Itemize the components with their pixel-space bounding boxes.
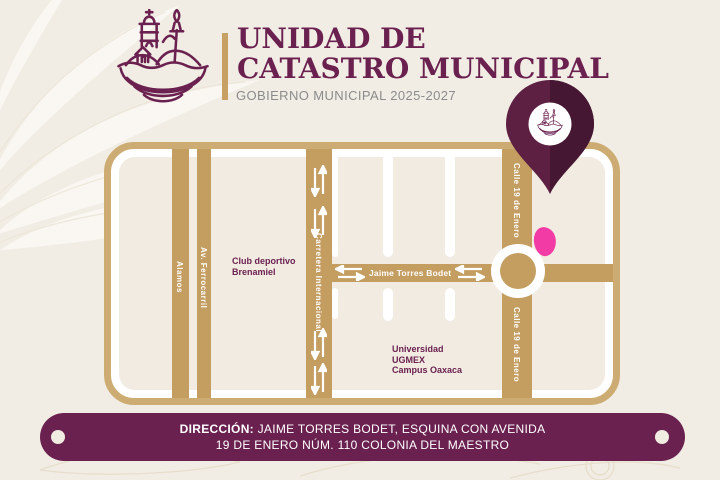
two-way-arrow-icon	[311, 165, 327, 197]
title-line1: UNIDAD DE	[237, 24, 657, 54]
address-line1-rest: JAIME TORRES BODET, ESQUINA CON AVENIDA	[254, 422, 545, 436]
minor-street	[383, 288, 393, 321]
municipal-emblem-logo	[110, 8, 216, 116]
roundabout	[500, 253, 536, 289]
address-line2: 19 DE ENERO NÚM. 110 COLONIA DEL MAESTRO	[40, 437, 685, 453]
place-universidad-ugmex: Universidad UGMEX Campus Oaxaca	[392, 344, 462, 376]
address-label: DIRECCIÓN:	[180, 422, 254, 436]
minor-street	[332, 149, 338, 257]
header-divider	[222, 33, 228, 100]
flyer-page: UNIDAD DE CATASTRO MUNICIPAL GOBIERNO MU…	[0, 0, 720, 480]
minor-street	[445, 288, 455, 321]
minor-street	[445, 149, 455, 257]
two-way-arrow-icon	[311, 363, 327, 395]
place-club-line2: Brenamiel	[232, 267, 296, 278]
two-way-arrow-icon	[455, 265, 485, 281]
page-subtitle: GOBIERNO MUNICIPAL 2025-2027	[236, 88, 456, 103]
street-label-calle-19-bottom: Calle 19 de Enero	[512, 307, 521, 382]
street-label-av-ferrocarril: Av. Ferrocarril	[199, 247, 208, 308]
street-label-alamos: Alamos	[175, 261, 184, 293]
place-uni-line3: Campus Oaxaca	[392, 365, 462, 376]
place-uni-line2: UGMEX	[392, 355, 462, 366]
address-line1: DIRECCIÓN: JAIME TORRES BODET, ESQUINA C…	[40, 421, 685, 437]
place-uni-line1: Universidad	[392, 344, 462, 355]
place-club-deportivo: Club deportivo Brenamiel	[232, 256, 296, 277]
page-title: UNIDAD DE CATASTRO MUNICIPAL	[237, 24, 657, 84]
place-club-line1: Club deportivo	[232, 256, 296, 267]
minor-street	[383, 149, 393, 257]
location-pin-icon	[498, 76, 602, 198]
two-way-arrow-icon	[311, 328, 327, 360]
minor-street	[332, 288, 338, 319]
street-label-carretera-internacional: Carretera Internacional	[314, 233, 323, 332]
two-way-arrow-icon	[335, 265, 365, 281]
street-label-jaime-torres-bodet: Jaime Torres Bodet	[369, 268, 451, 278]
address-text: DIRECCIÓN: JAIME TORRES BODET, ESQUINA C…	[40, 421, 685, 453]
address-bar: DIRECCIÓN: JAIME TORRES BODET, ESQUINA C…	[40, 413, 685, 461]
